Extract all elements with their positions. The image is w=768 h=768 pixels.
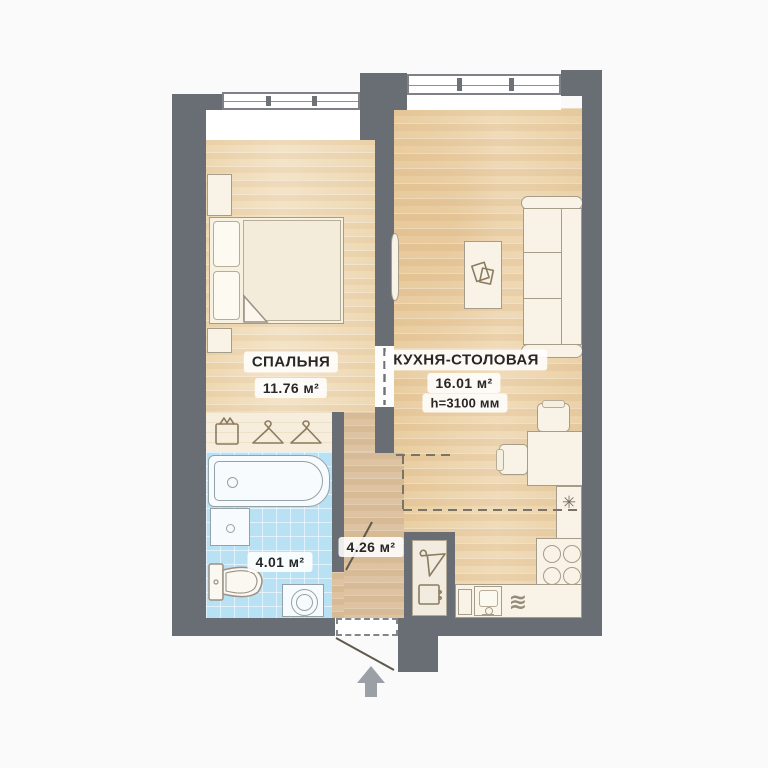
bed — [209, 217, 344, 324]
hallway-area: 4.26 м² — [339, 537, 404, 557]
entrance-arrow-stem — [365, 683, 377, 697]
dining-table — [527, 431, 583, 486]
wall-right — [582, 70, 602, 636]
window-glass-line — [409, 85, 559, 86]
entrance-arrow-icon — [357, 666, 385, 700]
vanity-sink — [210, 508, 250, 546]
hall-closet-icons — [413, 541, 446, 615]
chair-back — [542, 400, 565, 408]
window-mullion — [312, 96, 317, 106]
stove — [536, 538, 582, 590]
entrance-arrow-head — [357, 666, 385, 683]
counter-cabinet — [458, 589, 472, 615]
blanket-fold-icon — [210, 218, 345, 325]
wall-bottom-right — [437, 618, 602, 636]
tv — [391, 233, 399, 301]
hallway-door-opening-floor — [332, 572, 344, 618]
sink-basin — [479, 590, 498, 607]
kitchen-window-sill — [407, 94, 561, 110]
sofa-cushion-line — [524, 252, 561, 253]
bedroom-window — [222, 92, 360, 110]
washing-machine — [282, 584, 324, 617]
wall-entrance-right — [398, 618, 438, 672]
floor-plan-page: { "plan": { "type": "apartment-floor-pla… — [0, 0, 768, 768]
window-mullion — [457, 78, 462, 91]
nightstand — [207, 174, 232, 216]
stove-burner — [563, 545, 581, 563]
stove-burner — [543, 567, 561, 585]
sofa-body — [523, 208, 582, 345]
wall-step-block-lower — [360, 108, 394, 140]
wall-bedroom-kitchen-lower — [375, 407, 394, 453]
storage-box-icon — [419, 585, 441, 604]
hanger-icon — [291, 421, 321, 443]
stove-burner — [563, 567, 581, 585]
bedroom-area: 11.76 м² — [255, 378, 327, 398]
wall-bottom-left — [172, 618, 335, 636]
sink-faucet-stem — [482, 614, 494, 615]
window-glass-line — [224, 101, 358, 102]
bathroom-area: 4.01 м² — [248, 552, 313, 572]
chair-back — [496, 449, 504, 471]
bedroom-window-sill — [206, 108, 360, 140]
kitchen-sink — [474, 586, 502, 616]
hallway-floor-top — [344, 412, 375, 453]
vanity-drain — [226, 524, 235, 533]
bedroom-label: СПАЛЬНЯ — [244, 352, 338, 373]
wall-step-block — [360, 73, 407, 110]
kitchen-window — [407, 74, 561, 95]
kitchen-label: КУХНЯ-СТОЛОВАЯ — [385, 350, 547, 371]
hall-closet-cutout — [412, 540, 447, 616]
wall-top-bedroom — [172, 94, 222, 110]
nightstand — [207, 328, 232, 353]
window-mullion — [266, 96, 271, 106]
coffee-table — [464, 241, 502, 309]
stove-burner — [543, 545, 561, 563]
hanger-icon — [253, 421, 283, 443]
kitchen-area: 16.01 м² — [427, 373, 500, 393]
sofa-back-line — [561, 209, 562, 344]
washer-drum-inner — [296, 594, 313, 611]
window-mullion — [509, 78, 514, 91]
bathtub — [208, 455, 330, 507]
kitchen-counter-bottom: ≋ — [455, 584, 582, 618]
books-icon — [465, 242, 501, 307]
hanger-icon — [413, 542, 445, 576]
kitchen-height: h=3100 мм — [422, 394, 507, 413]
chair — [499, 444, 528, 475]
entrance-threshold — [336, 618, 398, 636]
bathtub-drain — [227, 477, 238, 488]
dishwasher-symbol: ≋ — [509, 589, 527, 615]
sofa-cushion-line — [524, 298, 561, 299]
burner-symbol: ✳ — [562, 493, 576, 513]
hallway-floor-main — [344, 452, 404, 618]
wardrobe-icons — [212, 416, 324, 448]
wall-left — [172, 94, 206, 636]
chair — [537, 403, 570, 432]
storage-box-icon — [216, 418, 238, 444]
